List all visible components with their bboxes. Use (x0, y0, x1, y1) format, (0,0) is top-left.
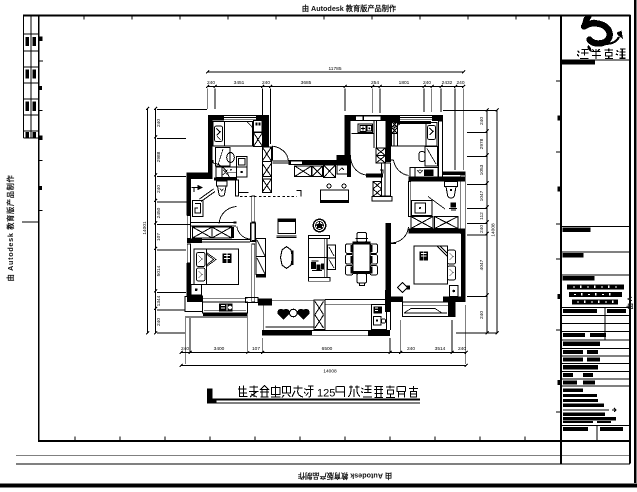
svg-text:240: 240 (479, 225, 485, 233)
svg-text:107: 107 (156, 233, 162, 241)
svg-text:240: 240 (262, 80, 270, 86)
svg-text:1344: 1344 (156, 295, 162, 306)
svg-text:11785: 11785 (329, 66, 342, 72)
svg-text:240: 240 (207, 80, 215, 86)
svg-text:由 Autodesk 教育版产品制作: 由 Autodesk 教育版产品制作 (6, 174, 15, 281)
svg-text:240: 240 (479, 311, 485, 319)
svg-text:2432: 2432 (442, 80, 453, 86)
svg-text:240: 240 (458, 346, 466, 352)
svg-text:240: 240 (156, 318, 162, 326)
svg-text:125: 125 (317, 388, 335, 400)
svg-text:240: 240 (423, 80, 431, 86)
svg-text:1047: 1047 (479, 190, 485, 201)
svg-text:254: 254 (371, 80, 379, 86)
svg-text:240: 240 (156, 119, 162, 127)
svg-text:2988: 2988 (156, 151, 162, 162)
svg-text:1801: 1801 (399, 80, 410, 86)
svg-text:5014: 5014 (156, 265, 162, 276)
svg-text:3400: 3400 (214, 346, 225, 352)
svg-text:240: 240 (479, 117, 485, 125)
svg-text:14008: 14008 (323, 369, 337, 375)
svg-text:240: 240 (456, 80, 464, 86)
svg-text:3514: 3514 (435, 346, 446, 352)
svg-text:2978: 2978 (479, 138, 485, 149)
svg-text:6500: 6500 (322, 346, 333, 352)
svg-text:240: 240 (407, 346, 415, 352)
svg-text:14008: 14008 (491, 223, 497, 237)
svg-text:4047: 4047 (479, 259, 485, 270)
svg-text:2450: 2450 (156, 207, 162, 218)
svg-text:1053: 1053 (479, 164, 485, 175)
svg-text:3451: 3451 (234, 80, 245, 86)
svg-text:112: 112 (479, 212, 485, 220)
svg-text:14001: 14001 (142, 221, 148, 235)
svg-text:240: 240 (156, 185, 162, 193)
svg-text:107: 107 (252, 346, 260, 352)
svg-text:由 Autodesk 教育版产品制作: 由 Autodesk 教育版产品制作 (297, 472, 392, 481)
svg-text:由 Autodesk 教育版产品制作: 由 Autodesk 教育版产品制作 (302, 4, 397, 13)
svg-text:3685: 3685 (301, 80, 312, 86)
